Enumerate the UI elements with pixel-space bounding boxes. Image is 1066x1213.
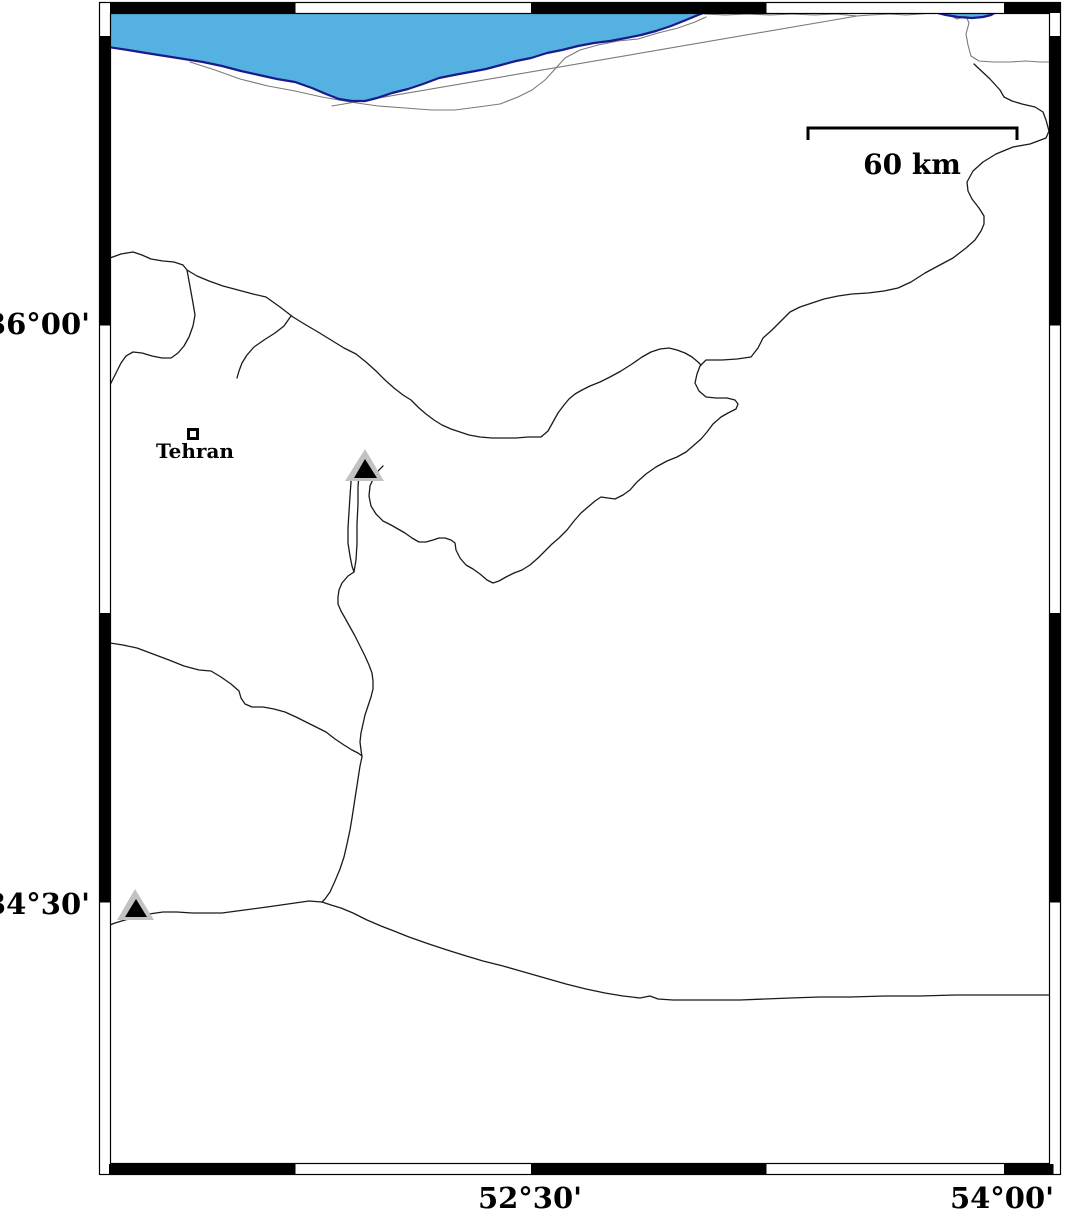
river-branch [237,316,291,378]
city-label: Tehran [156,439,234,463]
frame-segment [1004,2,1061,13]
frame-segment [1050,36,1061,325]
border-line-south [322,902,1050,1000]
border-line-north [110,252,701,438]
frame-segment [1004,1164,1053,1175]
frame-inner-outline [111,14,1050,1164]
lat-label-36: 36°00' [0,307,90,341]
frame-segment [531,1164,766,1175]
border-line-midwest [110,643,362,756]
triangle-marker-1 [345,449,384,481]
corner-detail-line [948,14,1050,62]
frame-segment [1050,613,1061,902]
border-line-east [369,64,1049,583]
coast-top-line [704,14,857,16]
lon-label-54: 54°00' [950,1181,1054,1213]
border-branch-west [110,270,195,385]
border-line-central [322,470,373,902]
scale-bar-label: 60 km [863,148,961,181]
border-line-central-return [354,467,360,572]
map-canvas: Tehran 60 km 36°00' 34°30' 52°30' 5 [0,0,1066,1213]
lon-label-52-30: 52°30' [478,1181,582,1213]
frame-segment [110,2,295,13]
triangle-marker-2 [117,889,154,920]
frame-segment [99,36,110,325]
frame-segment [99,613,110,902]
lat-label-34-30: 34°30' [0,887,90,921]
frame-segment [531,2,766,13]
sea-polygon [108,12,706,101]
city-marker-square [189,430,198,439]
frame-segment [109,1164,295,1175]
scale-bar [808,128,1017,140]
map-figure: Tehran 60 km 36°00' 34°30' 52°30' 5 [0,0,1066,1213]
